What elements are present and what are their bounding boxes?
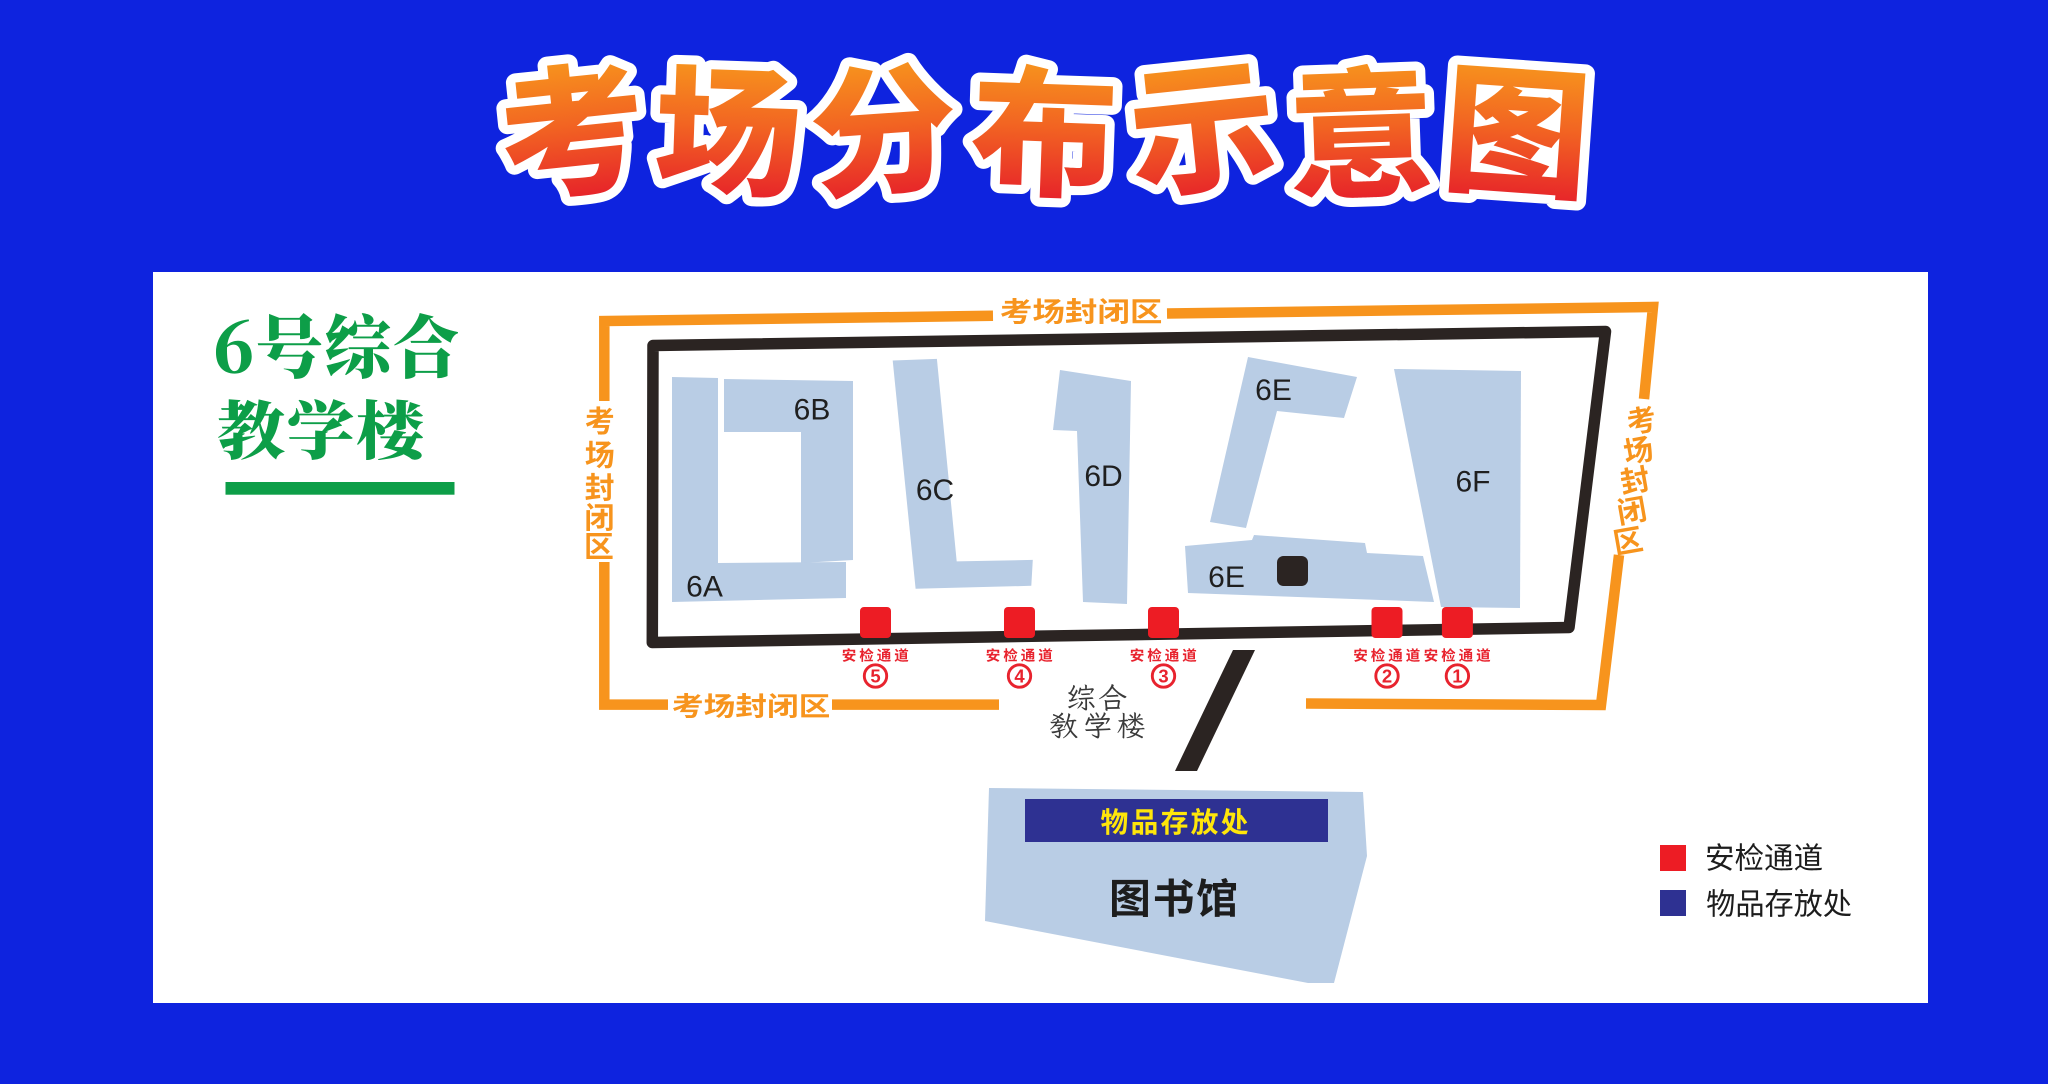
svg-text:6F: 6F xyxy=(1455,466,1490,499)
svg-text:6C: 6C xyxy=(916,474,954,507)
svg-text:3: 3 xyxy=(1158,666,1168,687)
svg-text:5: 5 xyxy=(870,666,880,687)
svg-text:6B: 6B xyxy=(794,394,831,427)
svg-text:2: 2 xyxy=(1382,666,1392,687)
svg-text:6A: 6A xyxy=(686,571,723,604)
svg-text:1: 1 xyxy=(1452,666,1462,687)
svg-text:4: 4 xyxy=(1014,666,1025,687)
svg-text:6E: 6E xyxy=(1255,374,1292,407)
svg-text:6D: 6D xyxy=(1084,460,1122,493)
svg-text:6E: 6E xyxy=(1208,561,1245,594)
